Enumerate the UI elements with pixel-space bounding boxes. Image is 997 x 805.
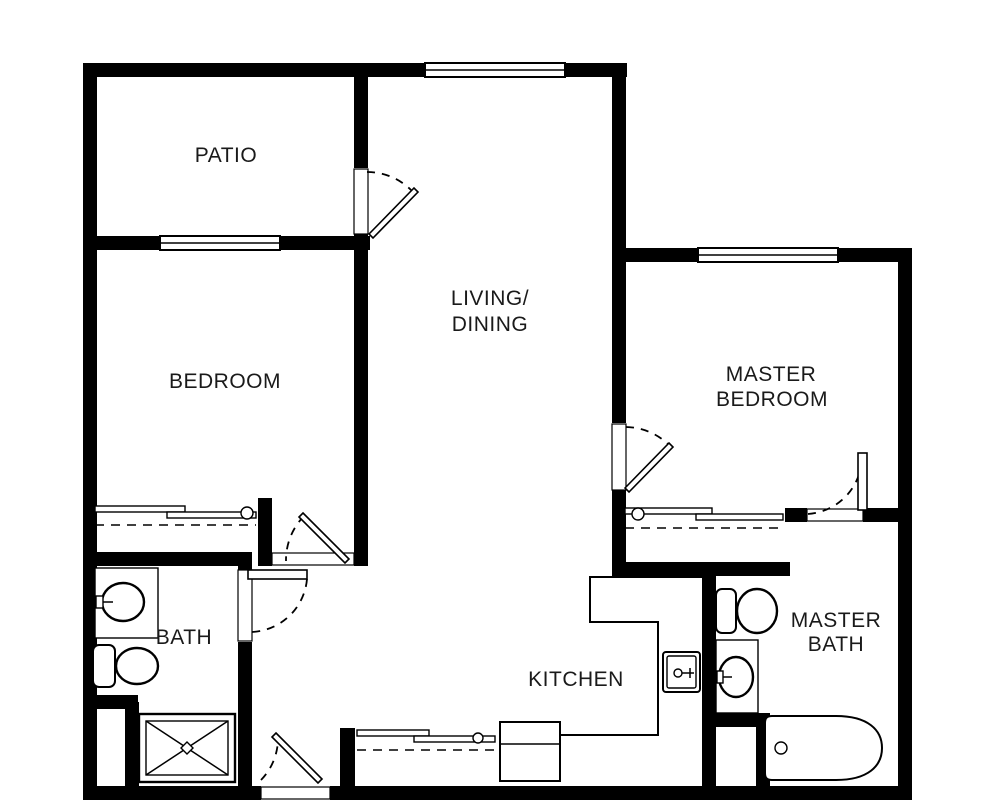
wall xyxy=(340,728,355,786)
room-label-kitchen: KITCHEN xyxy=(528,668,624,691)
master-bath-door xyxy=(807,453,867,521)
wall xyxy=(612,63,626,576)
door-leaf xyxy=(625,443,673,492)
room-label-bedroom: BEDROOM xyxy=(169,370,281,393)
window-icon xyxy=(425,63,565,77)
wall xyxy=(702,572,716,786)
window-icon xyxy=(160,236,280,250)
bedroom-closet closet-bypass-doors-icon xyxy=(95,506,256,525)
wall xyxy=(612,562,790,576)
entry-closet closet-bypass-doors-icon xyxy=(357,730,495,750)
room-label-master-bedroom-line1: MASTER xyxy=(726,363,817,386)
range-icon xyxy=(500,722,560,781)
sink-icon xyxy=(95,568,158,638)
door-leaf xyxy=(858,453,867,510)
walls xyxy=(83,63,912,800)
wall xyxy=(83,63,97,800)
wall xyxy=(83,552,243,566)
door-jamb xyxy=(354,169,368,234)
door-jamb xyxy=(807,509,863,521)
floor-plan-drawing: PATIO BEDROOM LIVING/ DINING MASTER BEDR… xyxy=(0,0,997,805)
room-label-master-bedroom-line2: BEDROOM xyxy=(716,388,828,411)
room-label-patio: PATIO xyxy=(195,144,257,167)
door-swing-arc xyxy=(808,457,862,514)
door-leaf xyxy=(248,570,307,579)
kitchen-sink-icon xyxy=(663,652,700,692)
bath-fixtures xyxy=(93,568,235,782)
master-bedroom-door xyxy=(612,424,673,492)
room-label-master-bath-line2: BATH xyxy=(808,633,864,656)
wall xyxy=(354,236,368,566)
door-swing-arc xyxy=(252,579,307,632)
room-label-bath: BATH xyxy=(156,626,212,649)
patio-door xyxy=(354,169,418,238)
door-jamb xyxy=(612,424,626,490)
master-bedroom-closet closet-bypass-doors-icon xyxy=(625,508,783,528)
wall xyxy=(258,498,272,566)
wall xyxy=(898,248,912,800)
door-leaf xyxy=(369,188,418,238)
door-swing-arc xyxy=(367,172,411,190)
floor-plan: PATIO BEDROOM LIVING/ DINING MASTER BEDR… xyxy=(0,0,997,805)
wall xyxy=(83,786,912,800)
door-jamb xyxy=(238,570,252,641)
doors xyxy=(238,169,867,799)
bathtub-icon xyxy=(765,716,882,780)
bedroom-door xyxy=(272,513,354,565)
door-jamb xyxy=(261,787,330,799)
windows xyxy=(160,63,838,262)
door-swing-arc xyxy=(261,739,278,780)
wall xyxy=(125,702,139,786)
room-label-living-line1: LIVING/ xyxy=(451,287,529,310)
shower-icon xyxy=(139,714,235,782)
sink-icon xyxy=(716,640,758,713)
toilet-icon xyxy=(93,645,158,687)
room-label-master-bath-line1: MASTER xyxy=(791,609,882,632)
door-leaf xyxy=(272,733,322,783)
door-swing-arc xyxy=(626,427,670,446)
toilet-icon xyxy=(716,589,777,633)
room-label-living-line2: DINING xyxy=(452,313,529,336)
bath-door xyxy=(238,570,307,641)
window-icon xyxy=(698,248,838,262)
entry-door xyxy=(261,733,330,799)
